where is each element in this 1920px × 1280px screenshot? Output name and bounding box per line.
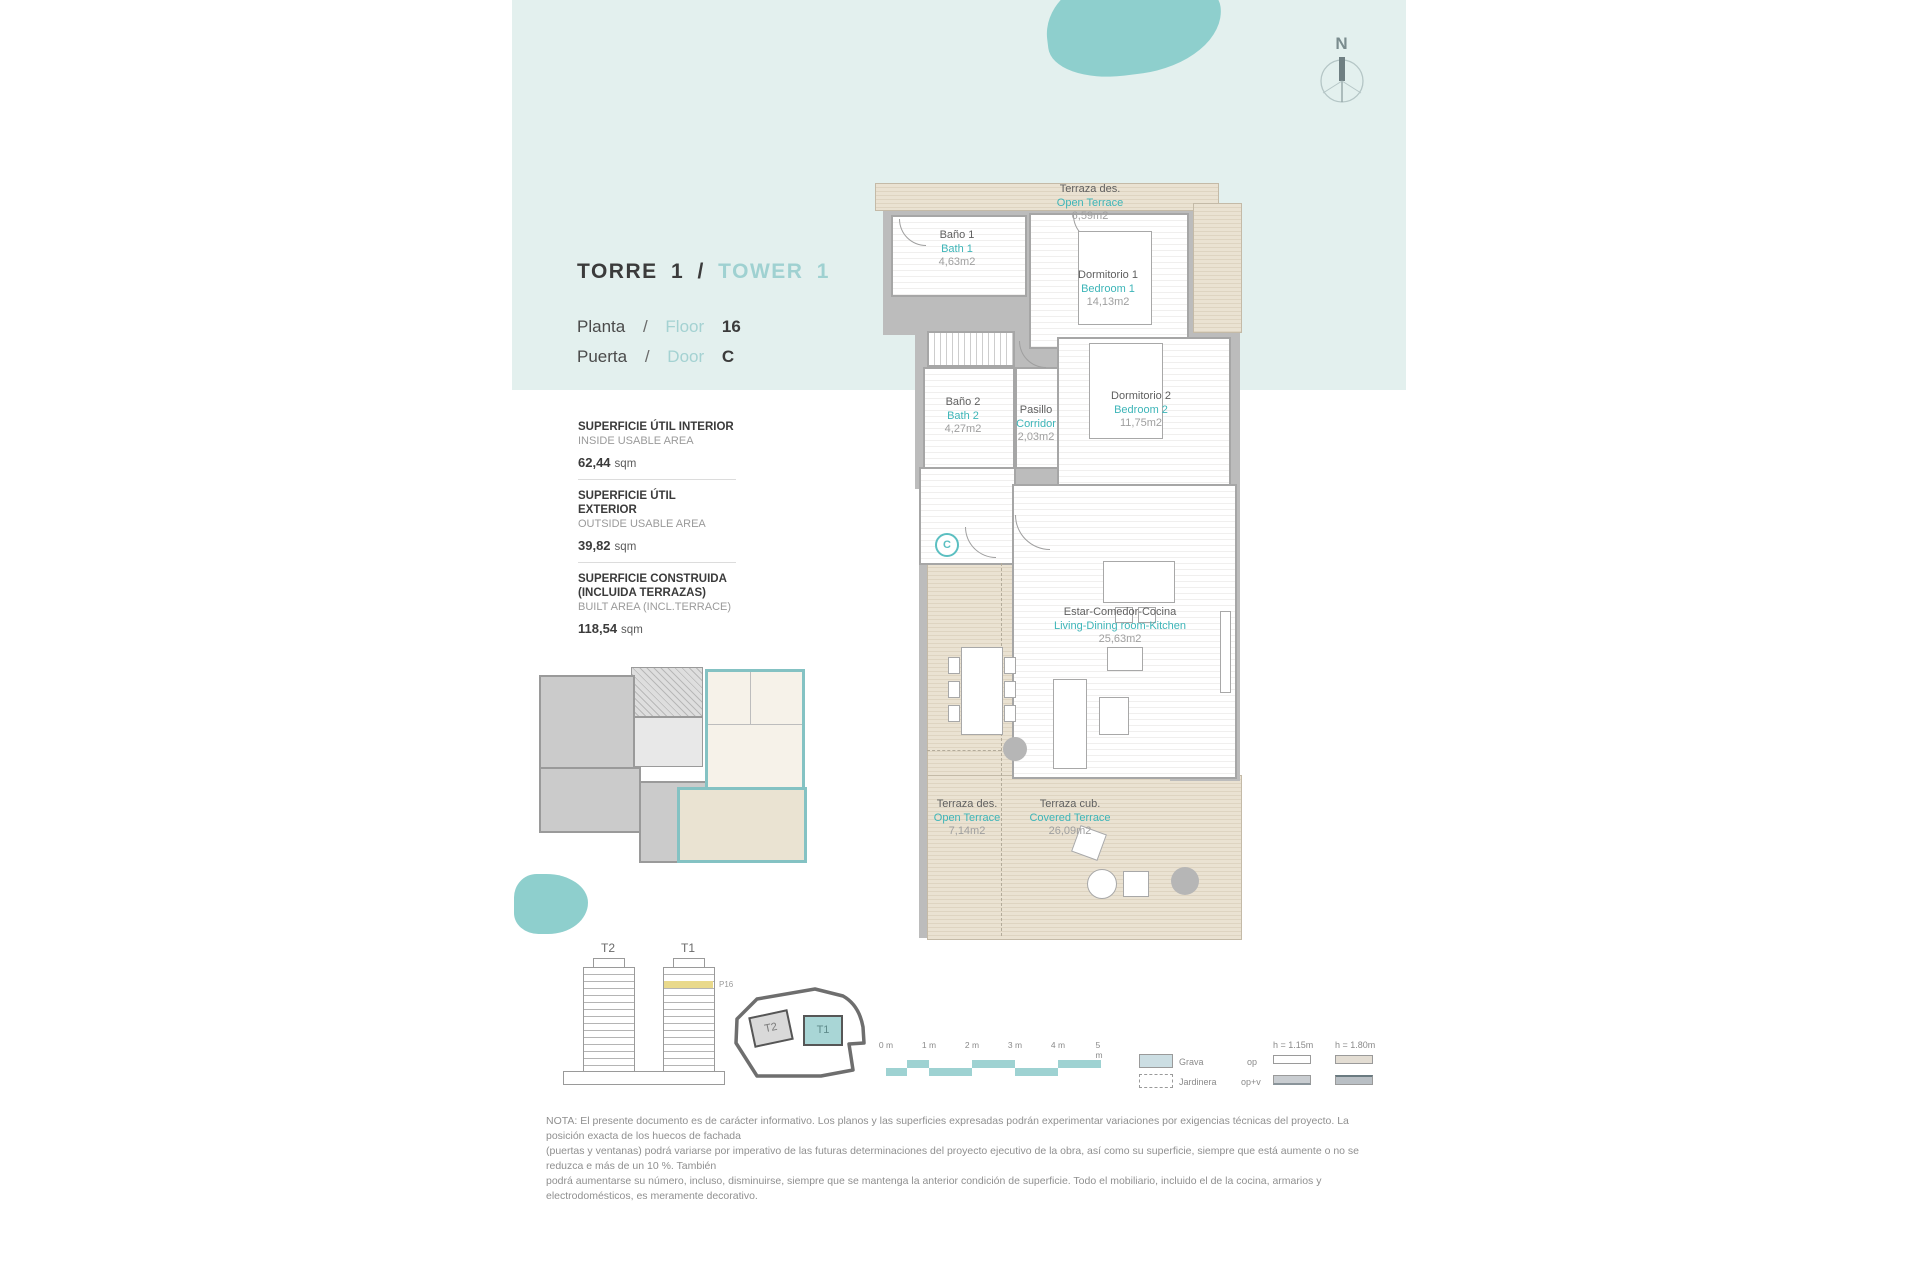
floor-separator: / <box>643 317 648 336</box>
room-name-en: Bath 1 <box>897 243 1017 257</box>
coffee-table <box>1099 697 1129 735</box>
room-name-en: Bedroom 1 <box>1048 283 1168 297</box>
area-value-number: 39,82 <box>578 538 611 553</box>
chair <box>1004 705 1016 722</box>
legend-op-115-swatch <box>1273 1055 1311 1064</box>
floor-line: Planta / Floor 16 <box>577 317 741 337</box>
scale-segment <box>886 1068 907 1076</box>
terrace-left-wall <box>919 559 927 938</box>
room-name-es: Baño 1 <box>897 229 1017 243</box>
key-plan-unit-c-terrace <box>677 787 807 863</box>
tower-t1-label: T1 <box>663 941 713 955</box>
tv-bench <box>1220 611 1231 693</box>
legend-opv-label: op+v <box>1241 1077 1261 1087</box>
room-name-es: Pasillo <box>997 404 1075 418</box>
room-area: 6,59m2 <box>1025 210 1155 224</box>
room-area: 11,75m2 <box>1081 417 1201 431</box>
label-corridor: Pasillo Corridor 2,03m2 <box>997 404 1075 445</box>
terrace-divider-vertical <box>1001 563 1002 936</box>
planta-label: Planta <box>577 317 625 336</box>
area-title-en: BUILT AREA (INCL.TERRACE) <box>578 600 736 614</box>
area-unit: sqm <box>621 624 643 636</box>
area-value: 118,54sqm <box>578 621 736 636</box>
site-outline <box>727 983 867 1083</box>
legend-jardinera-swatch <box>1139 1074 1173 1088</box>
chair <box>1004 657 1016 674</box>
sofa <box>1053 679 1087 769</box>
chair <box>948 657 960 674</box>
terrace-chair <box>1123 871 1149 897</box>
label-terrace-covered: Terraza cub. Covered Terrace 26,09m2 <box>1010 798 1130 839</box>
room-area: 14,13m2 <box>1048 296 1168 310</box>
area-entry-interior: SUPERFICIE ÚTIL INTERIOR INSIDE USABLE A… <box>578 420 736 480</box>
scale-tick: 5 m <box>1096 1040 1107 1060</box>
legend-opv-180-swatch <box>1335 1075 1373 1085</box>
disclaimer-note: NOTA: El presente documento es de caráct… <box>546 1114 1384 1204</box>
scale-bar: 0 m 1 m 2 m 3 m 4 m 5 m <box>882 1040 1112 1085</box>
room-name-en: Living-Dining room-Kitchen <box>1025 620 1215 634</box>
room-name-es: Terraza des. <box>1025 183 1155 197</box>
legend-height-1: h = 1.15m <box>1273 1040 1313 1050</box>
page-title: TORRE 1 / TOWER 1 <box>577 260 830 284</box>
legend-height-2: h = 1.80m <box>1335 1040 1375 1050</box>
key-plan-unit-a <box>539 675 635 771</box>
key-plan <box>527 661 815 869</box>
title-torre: TORRE 1 <box>577 260 684 283</box>
scale-segment <box>907 1060 929 1068</box>
site-t1: T1 <box>803 1015 843 1046</box>
label-bedroom2: Dormitorio 2 Bedroom 2 11,75m2 <box>1081 390 1201 431</box>
label-living: Estar-Comedor-Cocina Living-Dining room-… <box>1025 606 1215 647</box>
legend-grava-label: Grava <box>1179 1057 1204 1067</box>
terrace-right-deck <box>1193 203 1242 333</box>
key-plan-core-roof <box>631 667 703 717</box>
compass-icon <box>1314 54 1370 106</box>
title-separator: / <box>697 260 704 283</box>
area-value-number: 62,44 <box>578 455 611 470</box>
key-plan-partition <box>750 672 751 724</box>
title-tower: TOWER 1 <box>718 260 830 283</box>
scale-tick: 0 m <box>879 1040 893 1050</box>
area-title-es: SUPERFICIE ÚTIL EXTERIOR <box>578 489 736 517</box>
towers-base <box>563 1071 725 1085</box>
tower-elevations: T2 T1 P16 <box>557 941 737 1099</box>
legend: h = 1.15m h = 1.80m Grava Jardinera op o… <box>1139 1038 1389 1098</box>
terrace-divider-horizontal <box>927 750 1001 751</box>
dining-table <box>961 647 1003 735</box>
tower-t1-floor-highlight <box>664 981 713 988</box>
kitchen-island <box>1103 561 1175 603</box>
chair <box>948 681 960 698</box>
label-bedroom1: Dormitorio 1 Bedroom 1 14,13m2 <box>1048 269 1168 310</box>
door-separator: / <box>645 347 650 366</box>
room-name-es: Terraza des. <box>907 798 1027 812</box>
scale-segment <box>1058 1060 1101 1068</box>
legend-op-180-swatch <box>1335 1055 1373 1064</box>
chair <box>1004 681 1016 698</box>
door-line: Puerta / Door C <box>577 347 734 367</box>
floor-value: 16 <box>722 317 741 336</box>
room-name-es: Estar-Comedor-Cocina <box>1025 606 1215 620</box>
scale-segment <box>972 1060 1015 1068</box>
area-title-es: SUPERFICIE ÚTIL INTERIOR <box>578 420 736 434</box>
legend-opv-115-swatch <box>1273 1075 1311 1085</box>
scale-tick: 3 m <box>1008 1040 1022 1050</box>
area-value-number: 118,54 <box>578 621 617 636</box>
tower-t2-body <box>583 967 635 1073</box>
area-value: 39,82sqm <box>578 538 736 553</box>
key-plan-unit-b <box>539 767 641 833</box>
puerta-label: Puerta <box>577 347 627 366</box>
room-area: 2,03m2 <box>997 431 1075 445</box>
area-unit: sqm <box>615 541 637 553</box>
room-name-en: Bedroom 2 <box>1081 404 1201 418</box>
key-plan-partition <box>708 724 802 725</box>
tower-t2-label: T2 <box>583 941 633 955</box>
surface-areas-panel: SUPERFICIE ÚTIL INTERIOR INSIDE USABLE A… <box>578 420 736 654</box>
room-area: 7,14m2 <box>907 825 1027 839</box>
room-entry-hall <box>919 467 1016 565</box>
legend-jardinera-label: Jardinera <box>1179 1077 1217 1087</box>
room-name-en: Corridor <box>997 418 1075 432</box>
note-line-1: NOTA: El presente documento es de caráct… <box>546 1114 1384 1144</box>
closet-hatch <box>927 331 1015 367</box>
area-entry-exterior: SUPERFICIE ÚTIL EXTERIOR OUTSIDE USABLE … <box>578 489 736 563</box>
armchair <box>1107 647 1143 671</box>
note-line-3: podrá aumentarse su número, incluso, dis… <box>546 1174 1384 1204</box>
room-name-es: Dormitorio 2 <box>1081 390 1201 404</box>
area-entry-built: SUPERFICIE CONSTRUIDA (INCLUIDA TERRAZAS… <box>578 572 736 645</box>
room-name-en: Open Terrace <box>1025 197 1155 211</box>
scale-segment <box>929 1068 972 1076</box>
chair <box>948 705 960 722</box>
legend-grava-swatch <box>1139 1054 1173 1068</box>
area-value: 62,44sqm <box>578 455 736 470</box>
site-plan: T2 T1 <box>727 983 867 1083</box>
area-unit: sqm <box>615 458 637 470</box>
note-line-2: (puertas y ventanas) podrá variarse por … <box>546 1144 1384 1174</box>
door-value: C <box>722 347 734 366</box>
room-name-es: Terraza cub. <box>1010 798 1130 812</box>
room-name-en: Open Terrace <box>907 812 1027 826</box>
key-plan-core <box>631 717 703 767</box>
area-title-en: INSIDE USABLE AREA <box>578 434 736 448</box>
planter <box>1171 867 1199 895</box>
scale-tick: 1 m <box>922 1040 936 1050</box>
room-area: 26,09m2 <box>1010 825 1130 839</box>
terrace-table-round <box>1087 869 1117 899</box>
area-title-en: OUTSIDE USABLE AREA <box>578 517 736 531</box>
brochure-page: N TORRE 1 / TOWER 1 Planta / Floor 16 Pu… <box>0 0 1920 1280</box>
room-area: 25,63m2 <box>1025 633 1215 647</box>
door-label: Door <box>667 347 704 366</box>
area-title-es: SUPERFICIE CONSTRUIDA (INCLUIDA TERRAZAS… <box>578 572 736 600</box>
compass-north-label: N <box>1312 34 1372 54</box>
floor-plan: C Terraza des. Open Terrace 6,59m2 Baño … <box>875 181 1240 938</box>
compass: N <box>1312 34 1372 111</box>
label-terrace-top: Terraza des. Open Terrace 6,59m2 <box>1025 183 1155 224</box>
room-area: 4,63m2 <box>897 256 1017 270</box>
scale-tick: 4 m <box>1051 1040 1065 1050</box>
label-bath1: Baño 1 Bath 1 4,63m2 <box>897 229 1017 270</box>
planter <box>1003 737 1027 761</box>
decor-blob-bottom-left <box>514 874 588 934</box>
room-name-en: Covered Terrace <box>1010 812 1130 826</box>
entry-door-marker: C <box>935 533 959 557</box>
label-terrace-open: Terraza des. Open Terrace 7,14m2 <box>907 798 1027 839</box>
scale-segment <box>1015 1068 1058 1076</box>
floor-label: Floor <box>665 317 704 336</box>
scale-tick: 2 m <box>965 1040 979 1050</box>
legend-op-label: op <box>1247 1057 1257 1067</box>
key-plan-unit-c-highlight <box>705 669 805 793</box>
room-name-es: Dormitorio 1 <box>1048 269 1168 283</box>
